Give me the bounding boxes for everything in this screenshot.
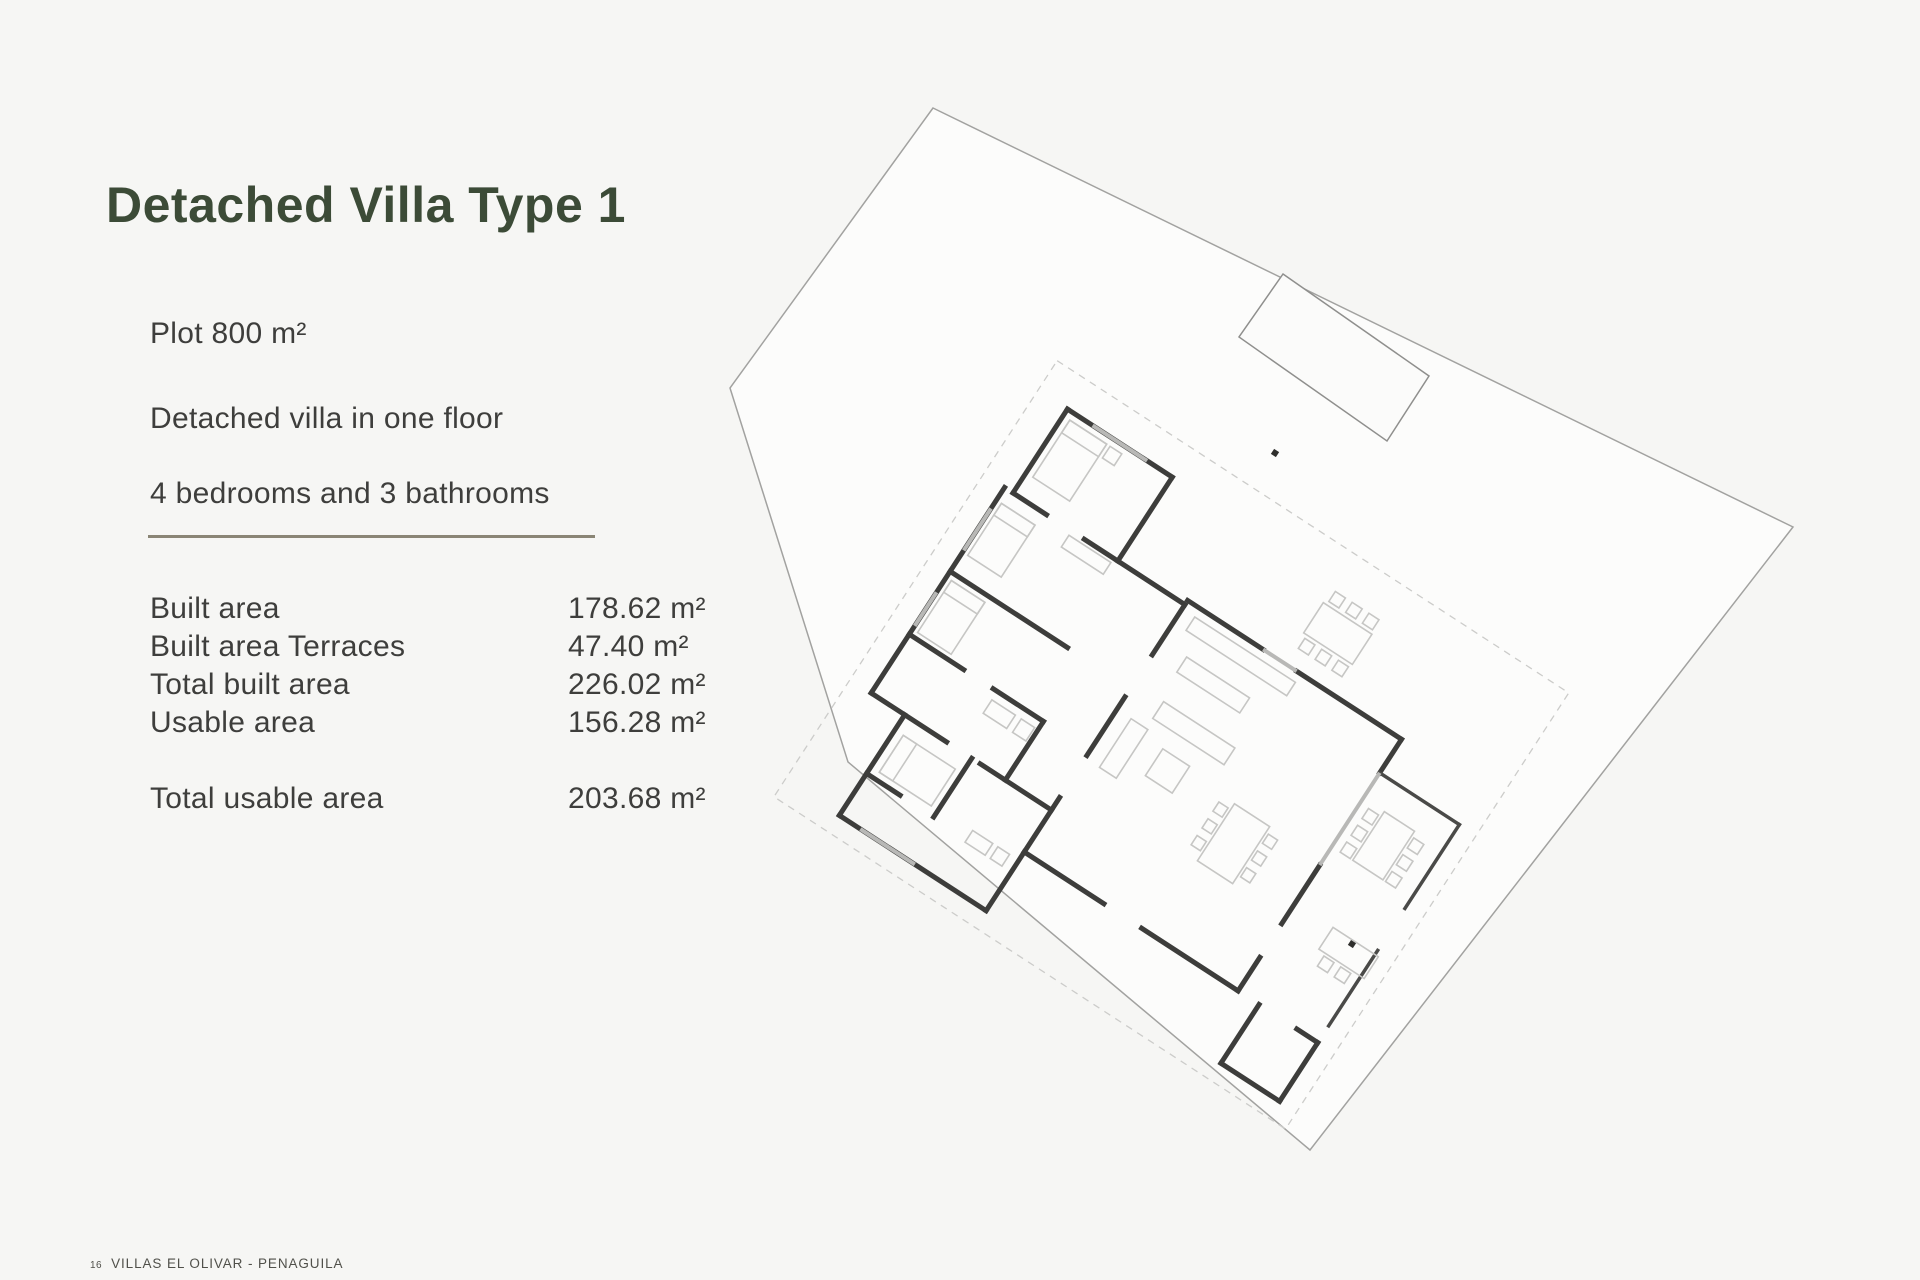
plot-boundary [730,108,1793,1150]
site-plan-drawing [0,0,1920,1280]
